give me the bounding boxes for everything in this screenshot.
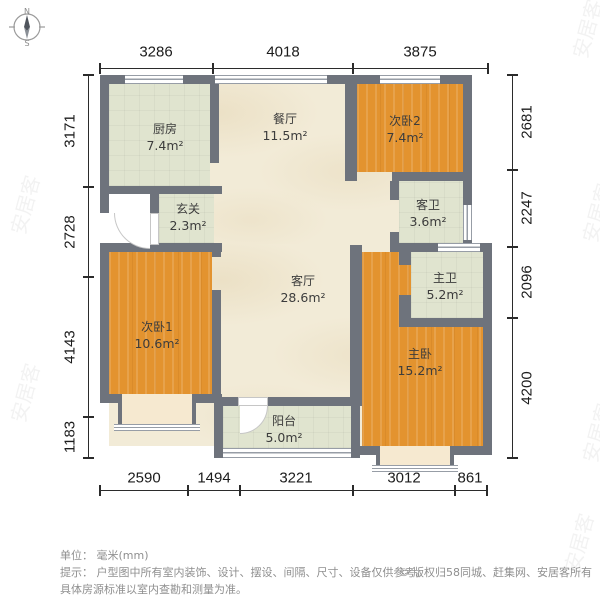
compass-north-letter: N [24, 7, 30, 16]
floor-plan-page: N S 安居客 安居客 安居客 安居客 安居客 安居客 [0, 0, 600, 600]
room-area: 7.4m² [386, 130, 423, 146]
dim-label-bottom-2: 1494 [197, 470, 230, 487]
watermark-text: 安居客 [574, 180, 600, 245]
dim-tick [83, 74, 94, 76]
room-area: 3.6m² [409, 214, 446, 230]
room-label-entry: 玄关 2.3m² [169, 202, 206, 234]
room-name: 阳台 [265, 414, 302, 430]
compass-icon: N S [6, 6, 48, 48]
room-name: 次卧1 [134, 320, 179, 336]
dim-tick [187, 485, 189, 496]
room-name: 主卧 [397, 347, 442, 363]
dim-tick [507, 169, 518, 171]
wall-bedroom1-right-a [212, 243, 221, 257]
dim-label-top-1: 3286 [139, 44, 172, 61]
dim-label-top-2: 4018 [266, 44, 299, 61]
room-name: 主卫 [426, 271, 463, 287]
room-label-bedroom2: 次卧2 7.4m² [386, 114, 423, 146]
footer-tip-line2: 具体房源标准以室内查勘和测量为准。 [60, 581, 247, 597]
watermark-text: 安居客 [2, 360, 46, 425]
window-dining [215, 75, 327, 84]
dim-tick [507, 317, 518, 319]
footer-tip-line1: 提示： 户型图中所有室内装饰、设计、摆设、间隔、尺寸、设备仅供参考。 [60, 564, 427, 580]
room-area: 7.4m² [146, 138, 183, 154]
wall-guest-bath-left-b [390, 232, 399, 243]
dim-tick [507, 457, 518, 459]
dimension-line-bottom [100, 490, 487, 491]
room-label-dining: 餐厅 11.5m² [262, 112, 307, 144]
wall-bedroom2-left [345, 84, 357, 181]
room-label-guest-bath: 客卫 3.6m² [409, 198, 446, 230]
footer-unit-line: 单位： 毫米(mm) [60, 547, 149, 563]
bay-window-bedroom1 [118, 394, 196, 424]
dim-tick [487, 63, 489, 74]
room-label-master-bedroom: 主卧 15.2m² [397, 347, 442, 379]
wall-master-bath-bottom [399, 318, 492, 327]
room-area: 28.6m² [280, 290, 325, 306]
dim-label-top-3: 3875 [403, 44, 436, 61]
watermark-text: 安居客 [2, 172, 46, 237]
dim-tick [83, 457, 94, 459]
watermark-text: 安居客 [564, 0, 600, 61]
wall-kitchen-bottom [100, 186, 222, 194]
wall-master-bath-left-a [399, 252, 411, 265]
dim-label-bottom-5: 861 [457, 470, 482, 487]
wall-jog-a [390, 243, 438, 252]
window-guest-bath [463, 205, 472, 240]
wall-left-lower [100, 247, 109, 403]
dim-label-right-3: 2096 [519, 265, 536, 298]
room-label-bedroom1: 次卧1 10.6m² [134, 320, 179, 352]
dim-label-right-2: 2247 [519, 191, 536, 224]
dim-tick [486, 485, 488, 496]
wall-living-master-divider [350, 245, 362, 406]
room-label-living: 客厅 28.6m² [280, 274, 325, 306]
room-area: 10.6m² [134, 336, 179, 352]
wall-right-lower [483, 243, 492, 455]
wall-living-bottom-b [268, 397, 360, 406]
dim-tick [352, 63, 354, 74]
room-name: 餐厅 [262, 112, 307, 128]
balcony-door-leaf [238, 397, 268, 406]
wall-master-bath-left-b [399, 295, 411, 318]
dim-tick [83, 416, 94, 418]
dim-tick [507, 246, 518, 248]
wall-guest-bath-left-a [390, 181, 399, 200]
bay-window-master [376, 446, 454, 465]
dim-tick [454, 485, 456, 496]
wall-entry-left-a [150, 194, 159, 213]
dim-tick [352, 485, 354, 496]
dim-label-left-1: 3171 [62, 114, 79, 147]
dim-label-bottom-3: 3221 [279, 470, 312, 487]
dim-tick [99, 63, 101, 74]
room-label-kitchen: 厨房 7.4m² [146, 122, 183, 154]
dim-label-bottom-4: 3012 [387, 470, 420, 487]
unit-label: 单位： [60, 549, 93, 562]
room-area: 11.5m² [262, 128, 307, 144]
wall-right-upper-a [463, 75, 472, 205]
unit-value: 毫米(mm) [97, 549, 149, 562]
room-label-master-bath: 主卫 5.2m² [426, 271, 463, 303]
dim-tick [83, 276, 94, 278]
room-area: 5.2m² [426, 287, 463, 303]
bay-window-master-sill [372, 465, 458, 472]
dim-tick [507, 74, 518, 76]
room-label-balcony: 阳台 5.0m² [265, 414, 302, 446]
entry-door-leaf [150, 213, 159, 245]
wall-bedroom1-right-b [212, 290, 221, 403]
room-name: 客厅 [280, 274, 325, 290]
room-name: 客卫 [409, 198, 446, 214]
dim-tick [83, 186, 94, 188]
window-master-bath [438, 243, 480, 252]
dimension-line-right [512, 75, 513, 458]
dim-label-left-2: 2728 [62, 215, 79, 248]
watermark-text: 安居客 [574, 400, 600, 465]
room-area: 2.3m² [169, 218, 206, 234]
room-area: 15.2m² [397, 363, 442, 379]
wall-bedroom2-bottom-b [392, 172, 472, 181]
dim-label-left-4: 1183 [62, 421, 79, 453]
wall-entry-bottom [100, 243, 222, 252]
dim-label-right-4: 4200 [519, 371, 536, 404]
dimension-line-left [88, 75, 89, 458]
dim-label-left-3: 4143 [62, 330, 79, 363]
dimension-line-top [100, 68, 488, 69]
balcony-rail-window [223, 448, 351, 458]
wall-bedroom2-bottom-a [345, 172, 357, 181]
dim-tick [99, 485, 101, 496]
bay-window-bedroom1-sill [114, 424, 200, 431]
room-area: 5.0m² [265, 430, 302, 446]
watermark-text: 安居客 [556, 510, 600, 575]
dim-tick [239, 485, 241, 496]
wall-kitchen-right [210, 84, 219, 163]
window-bedroom2 [380, 75, 440, 84]
dim-label-right-1: 2681 [519, 105, 536, 138]
compass-south-letter: S [24, 39, 29, 48]
window-kitchen [125, 75, 183, 84]
dim-tick [212, 63, 214, 74]
room-name: 玄关 [169, 202, 206, 218]
room-name: 厨房 [146, 122, 183, 138]
dim-label-bottom-1: 2590 [127, 470, 160, 487]
wall-balcony-left [214, 397, 223, 458]
room-name: 次卧2 [386, 114, 423, 130]
